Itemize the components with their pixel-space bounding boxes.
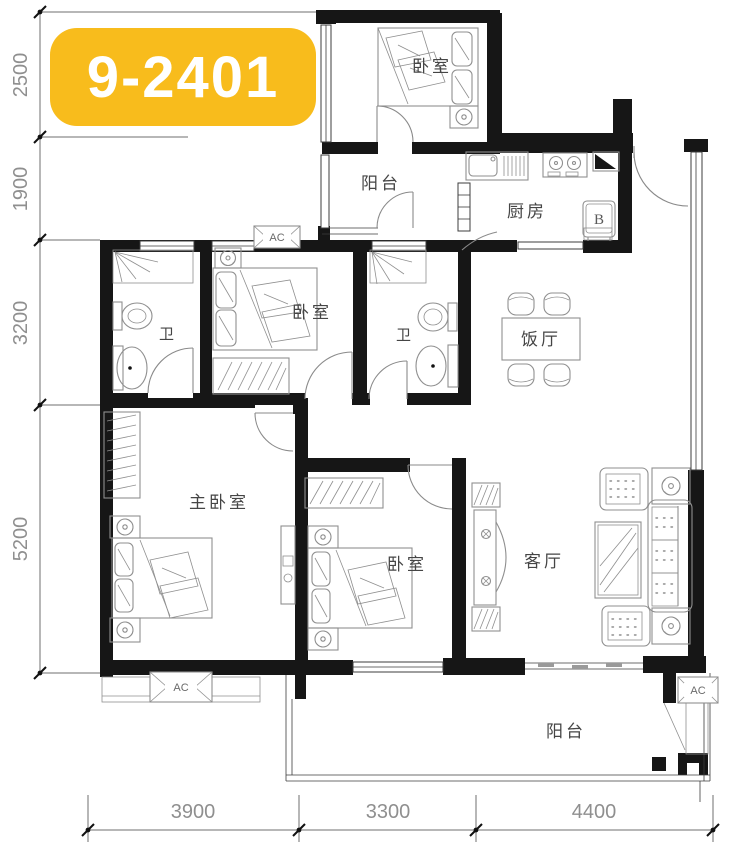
door-bath-right [369,361,407,399]
bed-master [112,538,212,618]
ac-unit-master: AC [150,672,212,702]
ac-label: AC [173,682,188,694]
fan-icon [117,622,133,638]
side-table [652,608,690,644]
door-balcony-top [377,192,413,228]
dimension-bottom: 3900 3300 4400 [82,795,719,842]
ac-unit-balcony: AC [678,677,718,703]
sofa [648,500,692,612]
bath-left-fixtures [113,250,193,390]
dining-chair [508,364,534,386]
dim-left-1900: 1900 [10,167,32,212]
sink-icon [416,345,458,387]
nightstand-master [110,618,140,642]
unit-badge: 9-2401 [50,28,316,126]
stove [543,153,587,177]
wardrobe-bedroom-mid [213,358,289,394]
master-bedroom-furniture [104,412,295,642]
label-bath-left: 卫 [159,326,177,343]
sliding-door-living [525,663,643,669]
side-table [652,468,690,504]
label-bedroom-mid: 卧室 [292,303,332,322]
nightstand-top-bedroom [450,106,478,128]
ac-platform-balcony [664,702,708,754]
door-master-bedroom [255,413,293,451]
armchair [600,468,648,510]
toilet-icon [418,303,457,331]
sofa-set [595,468,692,646]
coffee-table [595,522,641,598]
label-balcony-bottom: 阳台 [546,722,586,741]
fan-icon [315,529,331,545]
fridge: B [583,201,615,241]
door-top-bedroom [377,106,413,142]
ac-label: AC [269,232,284,244]
tv-console [472,483,506,631]
kitchen-pass-door [518,242,583,249]
kitchen-counter [466,152,528,180]
label-living: 客厅 [524,552,564,571]
label-dining: 饭厅 [521,330,561,349]
floor-plan-page: 2500 1900 3200 5200 3900 3300 4400 [0,0,735,844]
balcony-top-rail [321,155,329,228]
fan-icon [117,519,133,535]
bath-right-fixtures [370,250,458,387]
fan-icon [221,251,236,266]
fan-icon [315,631,331,647]
ac-unit-top: AC [254,226,300,248]
dim-bottom-3900: 3900 [171,801,216,823]
window-right-wall [691,152,702,470]
armchair [602,606,650,646]
label-master-bedroom: 主卧室 [189,493,249,512]
balcony-bottom-rail [286,673,710,802]
label-bedroom-lower: 卧室 [387,555,427,574]
floor-plan-drawing: 2500 1900 3200 5200 3900 3300 4400 [0,0,735,844]
nightstand-bedroom-lower [308,628,338,650]
door-bath-left [148,348,193,393]
desk-master [281,526,295,604]
toilet-icon [113,302,152,330]
fridge-label: B [594,212,604,228]
dim-left-2500: 2500 [10,53,32,98]
fan-icon [456,109,472,125]
dining-chair [544,364,570,386]
label-bedroom-top: 卧室 [412,57,452,76]
door-entry [634,146,688,206]
door-bedroom-mid [305,352,352,399]
dim-left-3200: 3200 [10,301,32,346]
dining-chair [544,293,570,315]
dim-bottom-4400: 4400 [572,801,617,823]
dining-chair [508,293,534,315]
fan-icon [662,477,680,495]
nightstand-bedroom-lower [308,526,338,548]
ac-label: AC [690,685,705,697]
label-bath-right: 卫 [396,327,414,344]
door-bedroom-lower [408,465,452,509]
label-balcony-top: 阳台 [361,174,401,193]
kitchen-corner-shelf [593,152,619,171]
unit-number: 9-2401 [87,45,280,110]
fan-icon [662,617,680,635]
label-kitchen: 厨房 [507,202,547,221]
wardrobe-bedroom-lower [305,478,383,508]
nightstand-master [110,516,140,538]
dim-left-5200: 5200 [10,517,32,562]
dim-bottom-3300: 3300 [366,801,411,823]
sink-icon [113,346,147,390]
